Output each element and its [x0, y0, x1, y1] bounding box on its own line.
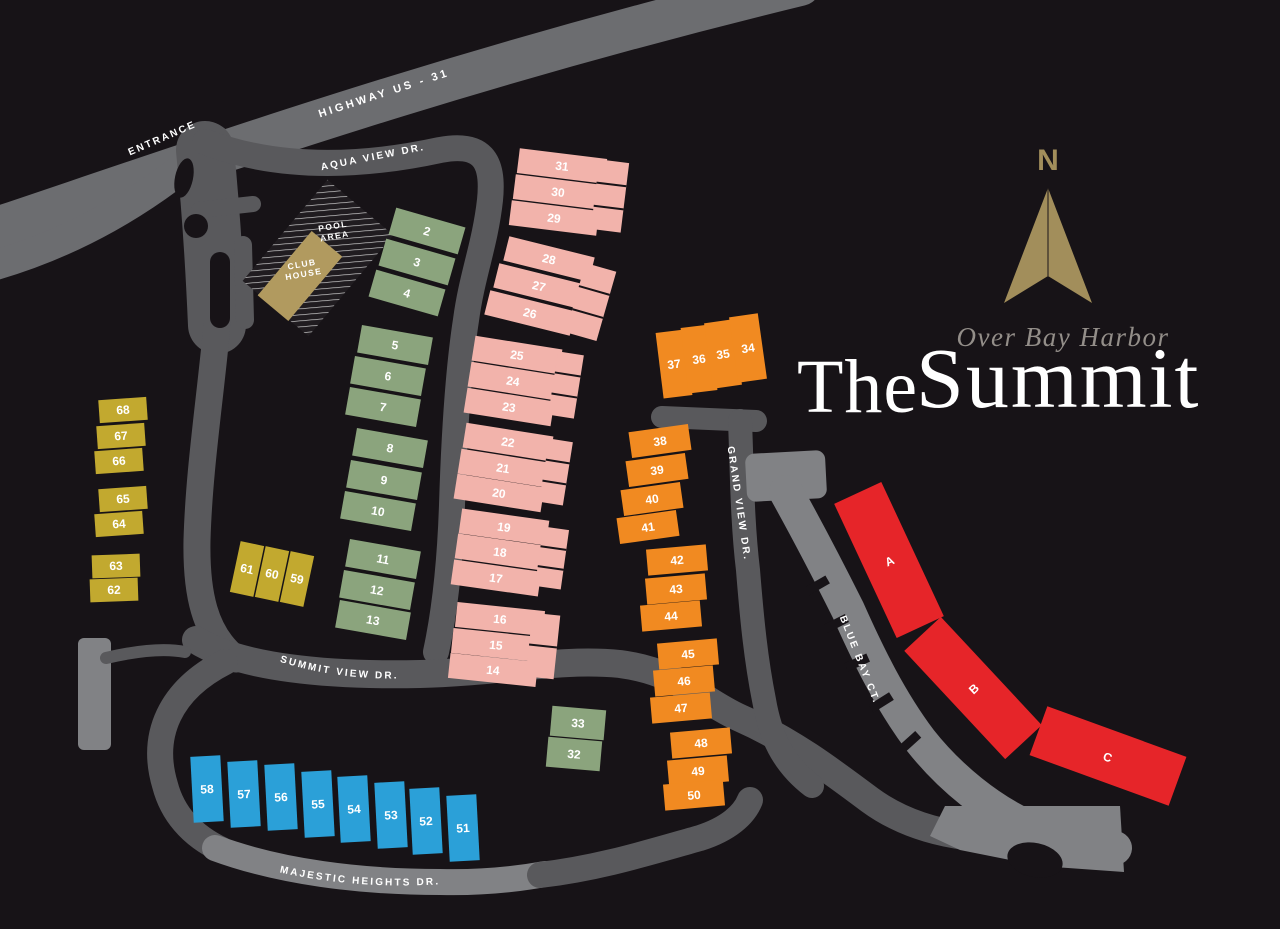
building-46: 46: [653, 665, 715, 696]
building-label-41: 41: [640, 519, 655, 535]
building-47: 47: [650, 692, 712, 723]
building-label-49: 49: [691, 764, 706, 779]
building-label-37: 37: [667, 357, 682, 373]
building-57: 57: [227, 760, 260, 827]
building-32: 32: [546, 737, 602, 772]
road-west: [197, 325, 236, 659]
building-64: 64: [94, 511, 143, 537]
building-label-18: 18: [492, 544, 507, 560]
building-label-63: 63: [109, 559, 123, 573]
building-39: 39: [625, 453, 688, 487]
building-53: 53: [374, 781, 407, 848]
road-clubhouse-stub: [199, 204, 253, 210]
building-label-12: 12: [369, 582, 385, 598]
building-label-31: 31: [554, 159, 569, 175]
building-45: 45: [657, 638, 719, 669]
building-label-45: 45: [681, 647, 696, 662]
building-label-21: 21: [495, 460, 511, 476]
building-label-34: 34: [740, 340, 755, 356]
site-map-page: POOL AREA CLUB HOUSE 2345678910111213333…: [0, 0, 1280, 929]
west-stub-connector: [106, 650, 185, 658]
building-label-57: 57: [237, 787, 251, 802]
building-8: 8: [352, 428, 428, 468]
building-label-44: 44: [664, 609, 679, 624]
building-label-51: 51: [456, 821, 470, 836]
building-58: 58: [190, 755, 223, 822]
building-label-39: 39: [649, 462, 664, 478]
building-33: 33: [550, 706, 606, 741]
building-label-16: 16: [493, 612, 508, 627]
building-label-13: 13: [365, 612, 381, 628]
building-56: 56: [264, 763, 297, 830]
building-label-53: 53: [384, 808, 398, 823]
building-66: 66: [94, 448, 143, 474]
building-label-47: 47: [674, 701, 689, 716]
building-65: 65: [98, 486, 147, 512]
building-label-22: 22: [500, 434, 516, 450]
building-label-35: 35: [715, 346, 730, 362]
site-plan-map: POOL AREA CLUB HOUSE 2345678910111213333…: [0, 0, 1280, 929]
building-51: 51: [446, 794, 479, 861]
building-label-55: 55: [311, 797, 325, 812]
building-label-48: 48: [694, 736, 709, 751]
building-54: 54: [337, 775, 370, 842]
brand-name: Summit: [916, 330, 1200, 426]
building-label-64: 64: [112, 516, 127, 531]
building-label-23: 23: [501, 399, 517, 415]
brand-the: The: [797, 345, 918, 429]
buildings-layer: 2345678910111213333231302928272625242322…: [90, 148, 1187, 862]
building-label-19: 19: [496, 519, 511, 535]
building-48: 48: [670, 727, 732, 758]
road-majestic-south: [215, 848, 545, 882]
building-label-40: 40: [644, 491, 659, 507]
building-42: 42: [646, 544, 708, 575]
building-label-43: 43: [669, 582, 684, 597]
building-label-20: 20: [491, 485, 507, 501]
brand-logo: Over Bay Harbor The Summit: [797, 322, 1200, 429]
building-label-66: 66: [112, 453, 127, 468]
building-38: 38: [628, 424, 691, 458]
building-label-46: 46: [677, 674, 692, 689]
building-label-14: 14: [486, 663, 501, 678]
building-62: 62: [90, 578, 139, 603]
building-label-65: 65: [116, 491, 131, 506]
building-50: 50: [663, 779, 725, 810]
building-label-30: 30: [550, 185, 565, 201]
building-68: 68: [98, 397, 147, 423]
building-label-24: 24: [505, 373, 521, 389]
building-label-17: 17: [488, 570, 503, 586]
building-44: 44: [640, 600, 702, 631]
road-majestic-east: [540, 800, 750, 875]
building-label-36: 36: [692, 352, 707, 368]
junction-island-2: [184, 214, 208, 238]
building-label-68: 68: [116, 402, 131, 417]
building-label-58: 58: [200, 782, 214, 797]
compass-n-label: N: [1037, 144, 1059, 177]
compass: N: [1004, 144, 1092, 303]
building-label-10: 10: [370, 503, 386, 519]
building-label-50: 50: [687, 788, 702, 803]
building-63: 63: [92, 554, 141, 579]
building-label-67: 67: [114, 428, 129, 443]
building-43: 43: [645, 573, 707, 604]
building-label-62: 62: [107, 583, 121, 597]
building-label-38: 38: [652, 433, 667, 449]
building-C: C: [1030, 706, 1187, 805]
amenities: POOL AREA CLUB HOUSE: [243, 180, 394, 336]
building-55: 55: [301, 770, 334, 837]
building-52: 52: [409, 787, 442, 854]
building-67: 67: [96, 423, 145, 449]
clubhouse-island: [210, 252, 230, 328]
building-label-25: 25: [509, 347, 525, 363]
building-label-33: 33: [571, 716, 586, 731]
building-label-52: 52: [419, 814, 433, 829]
building-label-32: 32: [567, 747, 582, 762]
building-label-42: 42: [670, 553, 685, 568]
building-label-15: 15: [489, 638, 504, 653]
building-label-29: 29: [546, 211, 561, 227]
building-label-56: 56: [274, 790, 288, 805]
building-label-54: 54: [347, 802, 361, 817]
